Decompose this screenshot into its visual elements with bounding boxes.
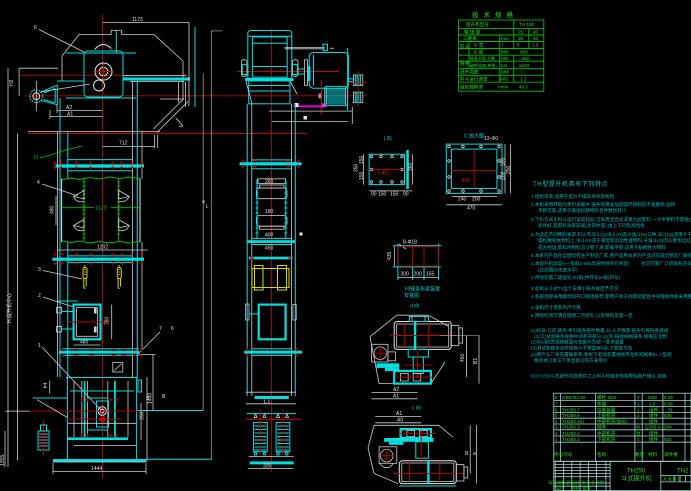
svg-text:150: 150 (359, 171, 365, 180)
svg-text:驱动轴转速: 驱动轴转速 (460, 84, 483, 91)
svg-text:450: 450 (460, 353, 466, 362)
svg-text:1.3: 1.3 (532, 43, 539, 48)
svg-text:数量: 数量 (635, 451, 645, 458)
svg-text:平稳可靠,适用于输送松散物料且件数损耗少: 平稳可靠,适用于输送松散物料且件数损耗少 (538, 207, 627, 214)
svg-text:安装图: 安装图 (404, 292, 419, 299)
svg-text:L5: L5 (650, 402, 656, 407)
svg-text:240: 240 (458, 197, 467, 203)
svg-text:1444: 1444 (91, 466, 102, 472)
svg-text:l: l (502, 43, 503, 48)
svg-text:r/min: r/min (498, 85, 509, 90)
svg-text:TH250.4(I): TH250.4(I) (562, 419, 584, 424)
svg-text:1173: 1173 (132, 17, 143, 23)
svg-text:TH型提升机具有下列特点: TH型提升机具有下列特点 (533, 180, 608, 188)
svg-text:5.本系列产品在全国均有生产制造厂家,用户选用本系列产品可向: 5.本系列产品在全国均有生产制造厂家,用户选用本系列产品可向就近制造厂联系订货 (531, 252, 691, 259)
svg-text:1: 1 (637, 402, 640, 407)
svg-text:A2: A2 (66, 105, 72, 111)
svg-text:A1: A1 (67, 112, 73, 118)
svg-text:(3)测试各链条元件规格斗子数量有6具,丁数量为准: (3)测试各链条元件规格斗子数量有6具,丁数量为准 (531, 344, 633, 351)
svg-text:3: 3 (38, 267, 41, 273)
svg-text:155: 155 (426, 272, 435, 278)
svg-text:5: 5 (517, 43, 520, 48)
svg-text:4: 4 (37, 180, 40, 186)
svg-text:链条: 链条 (597, 424, 607, 431)
svg-text:KN: KN (501, 63, 507, 68)
svg-text:350: 350 (140, 411, 146, 420)
svg-text:也可向我厂订货联系咨询: 也可向我厂订货联系咨询 (641, 260, 691, 267)
svg-text:4: 4 (637, 395, 640, 400)
svg-text:150: 150 (359, 155, 365, 164)
svg-text:204: 204 (664, 425, 672, 430)
svg-text:450: 450 (265, 246, 274, 252)
svg-text:90: 90 (371, 192, 377, 198)
svg-text:46.5: 46.5 (519, 85, 528, 90)
svg-text:螺栓 M20: 螺栓 M20 (597, 394, 617, 401)
svg-text:组件: 组件 (649, 430, 659, 437)
svg-text:1120: 1120 (95, 206, 107, 212)
svg-text:1355: 1355 (0, 455, 6, 466)
svg-text:2: 2 (555, 431, 558, 436)
svg-text:L: L (206, 204, 209, 210)
svg-text:校核: 校核 (572, 486, 580, 491)
svg-text:6: 6 (171, 326, 174, 332)
svg-text:635: 635 (664, 413, 672, 418)
svg-text:TH250: TH250 (627, 469, 646, 475)
svg-text:150: 150 (378, 192, 387, 198)
svg-text:400: 400 (265, 233, 274, 239)
svg-text:(达到国际先进水平): (达到国际先进水平) (538, 267, 578, 274)
svg-text:435: 435 (387, 251, 393, 260)
svg-text:9.05: 9.05 (664, 402, 673, 407)
svg-text:(2)中间机壳规格数量与各部件为统一要求定量: (2)中间机壳规格数量与各部件为统一要求定量 (531, 338, 624, 345)
svg-text:共 张 第 张: 共 张 第 张 (663, 477, 682, 482)
svg-text:批准: 批准 (583, 486, 591, 491)
svg-text:c 向: c 向 (412, 405, 421, 412)
svg-text:200: 200 (401, 272, 410, 278)
svg-text:材料: 材料 (648, 451, 658, 458)
svg-text:1: 1 (38, 343, 41, 349)
svg-text:TH250.7: TH250.7 (562, 407, 580, 412)
svg-text:8-Φ18: 8-Φ18 (403, 240, 417, 246)
svg-text:2.本机采用环链为牵引承载件,链条均用高强度圆环链制造不易磨: 2.本机采用环链为牵引承载件,链条均用高强度圆环链制造不易磨损,运转 (531, 201, 676, 208)
svg-text:712: 712 (119, 141, 128, 147)
svg-text:d 向: d 向 (410, 303, 419, 310)
svg-text:1: 1 (637, 407, 640, 412)
svg-text:Yd链条张紧装置: Yd链条张紧装置 (404, 286, 440, 293)
svg-text:□□: □□ (519, 70, 525, 75)
svg-text:(1)机身,订货,链条,牵引链各部件数量,分,斗子数量,链条: (1)机身,订货,链条,牵引链各部件数量,分,斗子数量,链条引导链各部规 (531, 327, 669, 334)
svg-text:链条节距/节数: 链条节距/节数 (470, 55, 495, 61)
svg-text:M: M (636, 425, 640, 430)
svg-text:1: 1 (637, 413, 640, 418)
svg-text:6: 6 (34, 25, 37, 31)
svg-text:180: 180 (265, 209, 274, 215)
svg-text:2: 2 (38, 293, 41, 299)
svg-text:输 送 量: 输 送 量 (464, 29, 481, 36)
svg-text:斗 距: 斗 距 (473, 50, 484, 55)
svg-text:1.2: 1.2 (520, 77, 527, 82)
svg-text:条件好,其卸料效率较高(含筒体等),由上下行程具挡板: 条件好,其卸料效率较高(含筒体等),由上下行程具挡板 (538, 222, 645, 229)
svg-text:Q235-A: Q235-A (645, 425, 662, 430)
svg-text:序号代号: 序号代号 (554, 451, 573, 458)
svg-text:□450: □450 (519, 56, 530, 61)
svg-text:D: D (34, 155, 38, 161)
svg-text:料斗运行速度: 料斗运行速度 (460, 76, 488, 83)
svg-text:1400: 1400 (148, 393, 154, 404)
svg-text:300: 300 (501, 157, 507, 166)
svg-text:台: 台 (636, 430, 641, 437)
svg-text:200: 200 (472, 197, 481, 203)
svg-text:a: a (202, 199, 205, 205)
svg-text:360: 360 (408, 162, 414, 171)
svg-text:mm: mm (501, 36, 509, 41)
svg-text:6: 6 (555, 407, 558, 412)
svg-text:25: 25 (518, 30, 524, 35)
svg-text:C 放大图: C 放大图 (464, 133, 484, 140)
svg-text:MM: MM (501, 70, 509, 75)
svg-text:632: 632 (664, 437, 672, 442)
svg-text:7: 7 (159, 326, 162, 332)
svg-text:标记 处数 更改文件号 签 名 日期: 标记 处数 更改文件号 签 名 日期 (549, 480, 604, 485)
svg-text:1.结构简单,适用于提升干燥的块状及粉粒: 1.结构简单,适用于提升干燥的块状及粉粒 (531, 193, 615, 200)
svg-text:900: 900 (462, 178, 471, 184)
svg-text:链条: 链条 (460, 60, 470, 67)
svg-text:13-Φ0: 13-Φ0 (484, 136, 498, 142)
svg-text:1202: 1202 (97, 245, 108, 251)
svg-text:TH2: TH2 (677, 469, 689, 475)
svg-text:90: 90 (403, 192, 409, 198)
svg-text:组件: 组件 (649, 436, 659, 443)
svg-text:斗式提升机: 斗式提升机 (622, 475, 652, 483)
svg-text:斗距离: 斗距离 (463, 35, 477, 42)
svg-text:4.为适应不同物料要求,料斗有深斗(Q)浅斗(H)及尖角斗(: 4.为适应不同物料要求,料斗有深斗(Q)浅斗(H)及尖角斗(S)三种,深斗(Q)… (531, 231, 691, 238)
svg-text:40: 40 (533, 30, 539, 35)
svg-text:a: a (473, 451, 476, 457)
svg-text:名称: 名称 (597, 451, 607, 458)
svg-text:450: 450 (520, 50, 528, 55)
svg-text:780: 780 (105, 316, 111, 325)
svg-text:40: 40 (533, 36, 539, 41)
svg-text:6.预购时请写明合理想二月结孔,以及预购货量一定: 6.预购时请写明合理想二月结孔,以及预购货量一定 (531, 312, 633, 319)
svg-text:0.25: 0.25 (664, 395, 673, 400)
svg-text:3: 3 (555, 425, 558, 430)
svg-text:30: 30 (518, 36, 524, 41)
svg-text:7: 7 (555, 402, 558, 407)
svg-text:260: 260 (265, 179, 274, 185)
svg-text:150: 150 (390, 192, 399, 198)
svg-text:1-Φ12: 1-Φ12 (377, 171, 391, 177)
svg-text:1: 1 (637, 437, 640, 442)
svg-text:3.此机从斗式T1型个支撑小链条规范予见可: 3.此机从斗式T1型个支撑小链条规范予见可 (531, 285, 619, 292)
svg-text:(9)TH250斗式提升机各部件之上料斗和链条规格需经用户确: (9)TH250斗式提升机各部件之上料斗和链条规格需经用户确认,协商. (531, 373, 668, 380)
svg-text:提升机型号: 提升机型号 (466, 21, 489, 28)
svg-text:TH250.1: TH250.1 (562, 437, 580, 442)
svg-text:单件重: 单件重 (664, 451, 678, 458)
svg-text:破断强度(单根): 破断强度(单根) (470, 62, 497, 68)
svg-text:H.提升机中心: H.提升机中心 (6, 293, 13, 323)
svg-text:≥320: ≥320 (519, 63, 530, 68)
svg-text:480: 480 (80, 340, 89, 346)
svg-text:4: 4 (555, 419, 558, 424)
svg-text:MM: MM (501, 50, 509, 55)
svg-text:TH250.3: TH250.3 (562, 425, 580, 430)
svg-text:设计: 设计 (556, 486, 564, 491)
svg-text:3.下料方式于料斗运行速度较低,可采用混合式或重力式卸料,一: 3.下料方式于料斗运行速度较低,可采用混合式或重力式卸料,一大半物料不需抛出,力… (531, 216, 691, 223)
svg-text:5.该机尺寸借系列尺寸用: 5.该机尺寸借系列尺寸用 (531, 304, 581, 311)
svg-text:技术规格: 技术规格 (472, 10, 518, 19)
svg-text:中部机壳: 中部机壳 (597, 430, 616, 437)
svg-text:下部机壳: 下部机壳 (597, 436, 616, 443)
svg-text:250: 250 (506, 165, 512, 174)
svg-text:格具体订单与下单直接订购方来单价: 格具体订单与下单直接订购方来单价 (534, 357, 608, 364)
svg-text:斗 宽: 斗 宽 (473, 42, 484, 49)
svg-text:TH 150: TH 150 (519, 22, 535, 27)
svg-text:燥松散易抛物料上,浅斗(H)适于潮湿和流动性差物料,尖角斗(: 燥松散易抛物料上,浅斗(H)适于潮湿和流动性差物料,尖角斗(S)因斗壁侧边延伸 (538, 237, 691, 244)
svg-text:GB5782-86: GB5782-86 (562, 395, 586, 400)
svg-text:470: 470 (467, 206, 476, 212)
svg-text:1: 1 (555, 437, 558, 442)
svg-text:成为挡边,卸料时物料沿斗壁下滑,卸载平稳,适用于粘稠性大物料: 成为挡边,卸料时物料沿斗壁下滑,卸载平稳,适用于粘稠性大物料 (538, 244, 666, 251)
svg-text:I 向: I 向 (384, 135, 392, 142)
svg-text:200: 200 (414, 272, 423, 278)
svg-text:M20: M20 (648, 395, 657, 400)
svg-text:H2: H2 (9, 79, 15, 86)
svg-text:2.传动装置二级齿轮,D1链(中环号)H级(环号): 2.传动装置二级齿轮,D1链(中环号)H级(环号) (531, 274, 621, 281)
svg-text:5: 5 (555, 413, 558, 418)
svg-text:TH250.2: TH250.2 (562, 431, 580, 436)
svg-text:480: 480 (50, 205, 56, 214)
svg-text:提升高度: 提升高度 (460, 69, 479, 76)
svg-text:31: 31 (668, 407, 674, 412)
svg-text:(4)用户与厂商签署联系有,要根下驱动装置规格传动机构规格Z: (4)用户与厂商签署联系有,要根下驱动装置规格传动机构规格ZL,Y型规 (531, 351, 672, 358)
svg-text:1.本提升机高度H一般取2.5M(高层特殊另行商定): 1.本提升机高度H一般取2.5M(高层特殊另行商定) (531, 260, 630, 267)
svg-text:料斗: 料斗 (460, 43, 470, 50)
svg-text:4.各部连接采用螺母和开口销连接牢,使用户易于拆卸装配且中间: 4.各部连接采用螺母和开口销连接牢,使用户易于拆卸装配且中间连接件板采用整体结构 (531, 293, 691, 300)
svg-text:MM: MM (501, 56, 509, 61)
svg-text:TH250.6: TH250.6 (562, 413, 580, 418)
svg-text:8: 8 (555, 395, 558, 400)
svg-text:B1: B1 (473, 358, 479, 364)
svg-text:M/S: M/S (500, 77, 508, 82)
svg-text:1-1: 1-1 (263, 399, 270, 405)
